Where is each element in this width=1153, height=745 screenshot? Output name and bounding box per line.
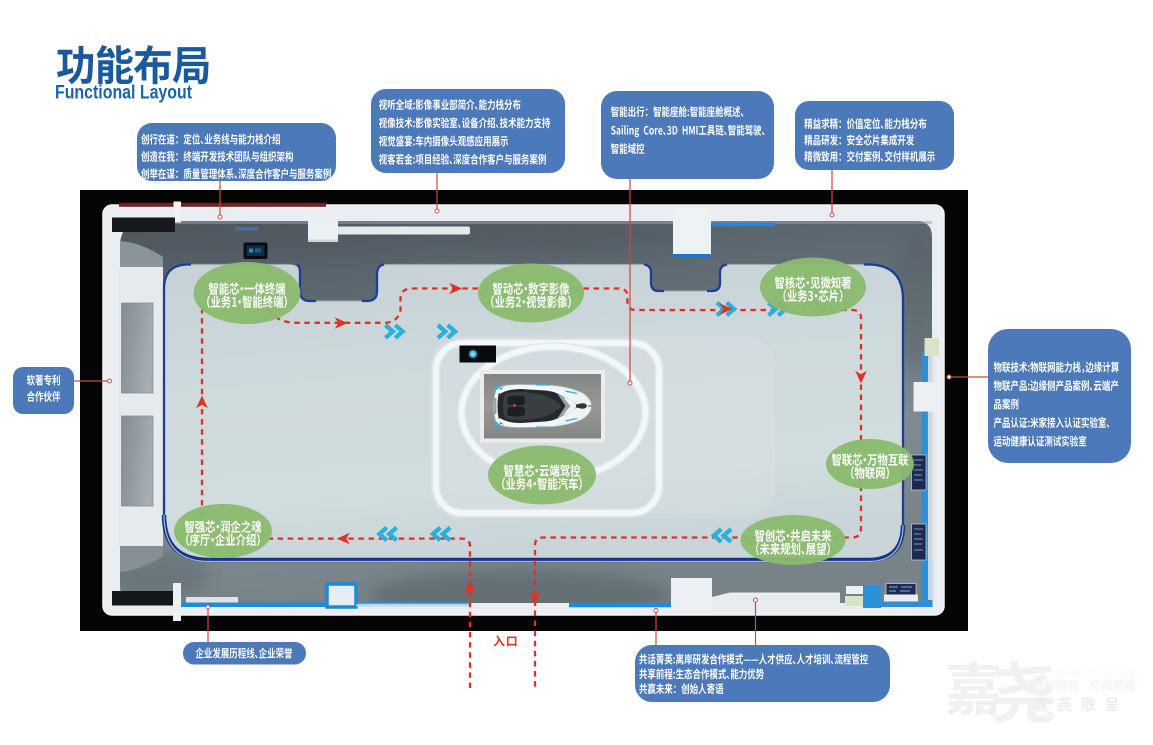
svg-text:JIAYAOYINGZAO: JIAYAOYINGZAO bbox=[1033, 669, 1141, 680]
svg-text:Functional Layout: Functional Layout bbox=[55, 83, 193, 104]
